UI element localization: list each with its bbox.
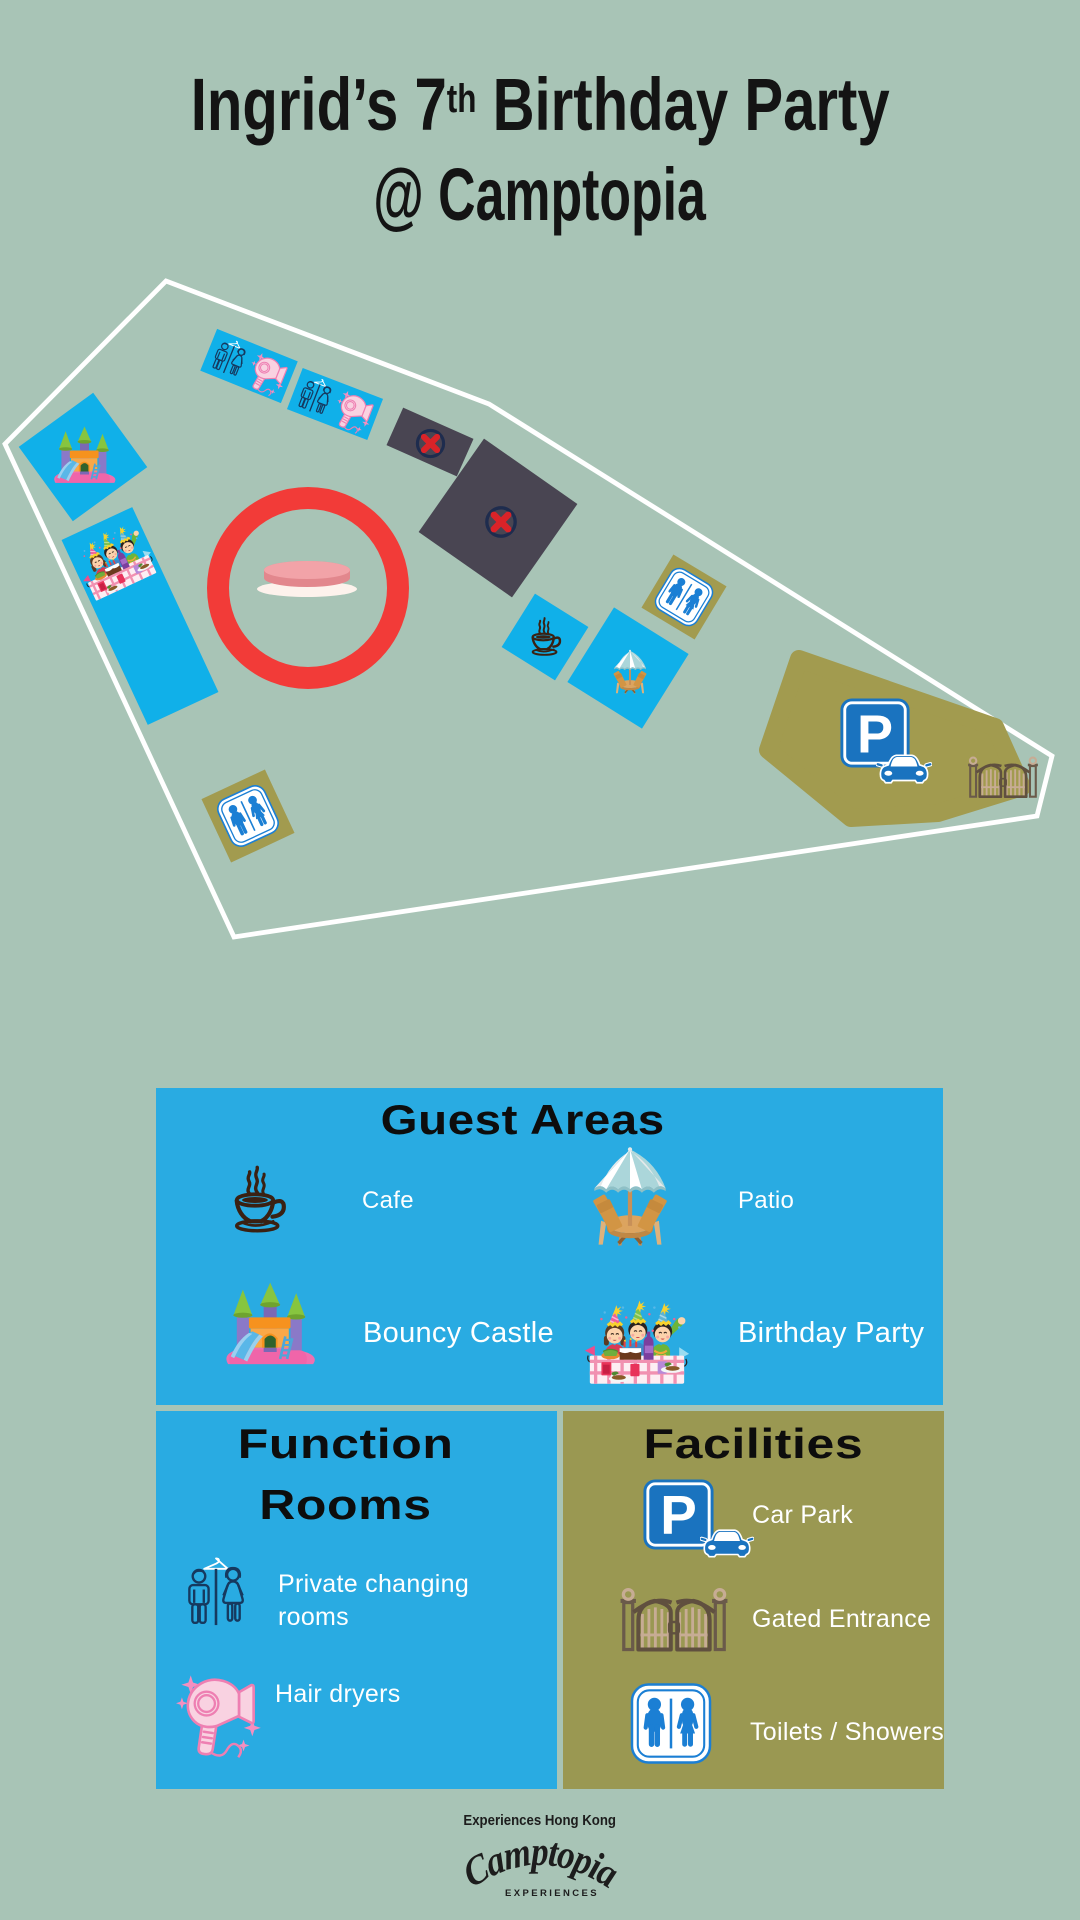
svg-text:Camptopia: Camptopia xyxy=(457,1833,624,1893)
